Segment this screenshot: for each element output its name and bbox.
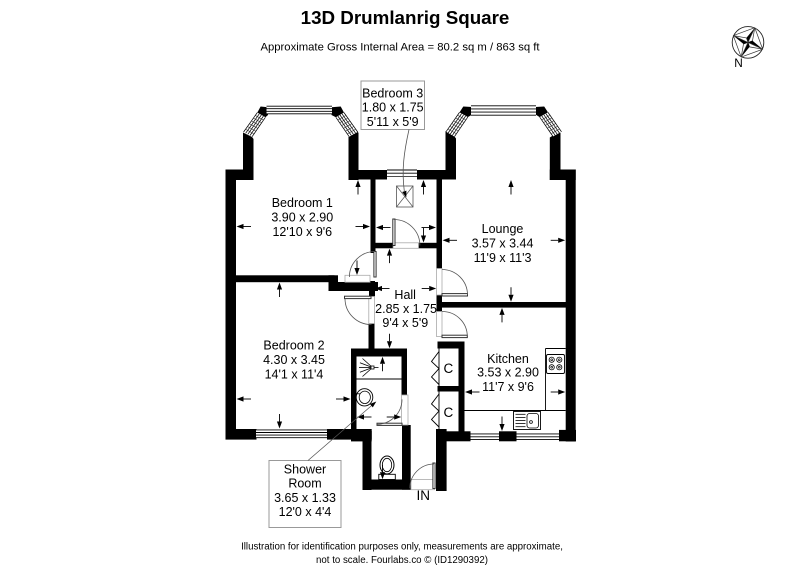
svg-text:9'4 x 5'9: 9'4 x 5'9 [382,316,428,330]
svg-text:IN: IN [417,488,431,503]
svg-text:3.57 x 3.44: 3.57 x 3.44 [472,236,534,250]
svg-text:C: C [444,405,454,420]
svg-text:N: N [734,56,743,70]
svg-text:14'1 x 11'4: 14'1 x 11'4 [265,367,324,381]
svg-text:12'0 x 4'4: 12'0 x 4'4 [279,505,332,519]
svg-text:Bedroom 1: Bedroom 1 [272,196,333,210]
svg-text:not to scale. Fourlabs.co © (I: not to scale. Fourlabs.co © (ID1290392) [316,555,488,566]
svg-text:11'7 x 9'6: 11'7 x 9'6 [482,380,534,394]
svg-text:Room: Room [288,477,321,491]
svg-text:11'9 x 11'3: 11'9 x 11'3 [474,251,532,265]
svg-text:4.30 x 3.45: 4.30 x 3.45 [263,353,325,367]
svg-text:Shower: Shower [284,463,326,477]
svg-text:C: C [444,361,454,376]
svg-text:5'11 x 5'9: 5'11 x 5'9 [367,115,419,129]
svg-text:Hall: Hall [394,288,416,302]
svg-text:Illustration for identificatio: Illustration for identification purposes… [241,542,563,553]
svg-text:12'10 x 9'6: 12'10 x 9'6 [272,225,332,239]
svg-text:Bedroom 2: Bedroom 2 [263,338,324,352]
svg-text:2.85 x 1.75: 2.85 x 1.75 [375,302,437,316]
svg-text:Bedroom 3: Bedroom 3 [362,86,423,100]
svg-text:3.90 x 2.90: 3.90 x 2.90 [271,211,333,225]
svg-text:Approximate Gross Internal Are: Approximate Gross Internal Area = 80.2 s… [260,42,540,54]
svg-text:3.65 x 1.33: 3.65 x 1.33 [274,491,336,505]
svg-text:Lounge: Lounge [482,222,524,236]
svg-text:Kitchen: Kitchen [487,352,529,366]
svg-text:13D Drumlanrig Square: 13D Drumlanrig Square [301,7,510,28]
svg-text:1.80 x 1.75: 1.80 x 1.75 [362,101,424,115]
svg-text:3.53 x 2.90: 3.53 x 2.90 [477,365,539,379]
